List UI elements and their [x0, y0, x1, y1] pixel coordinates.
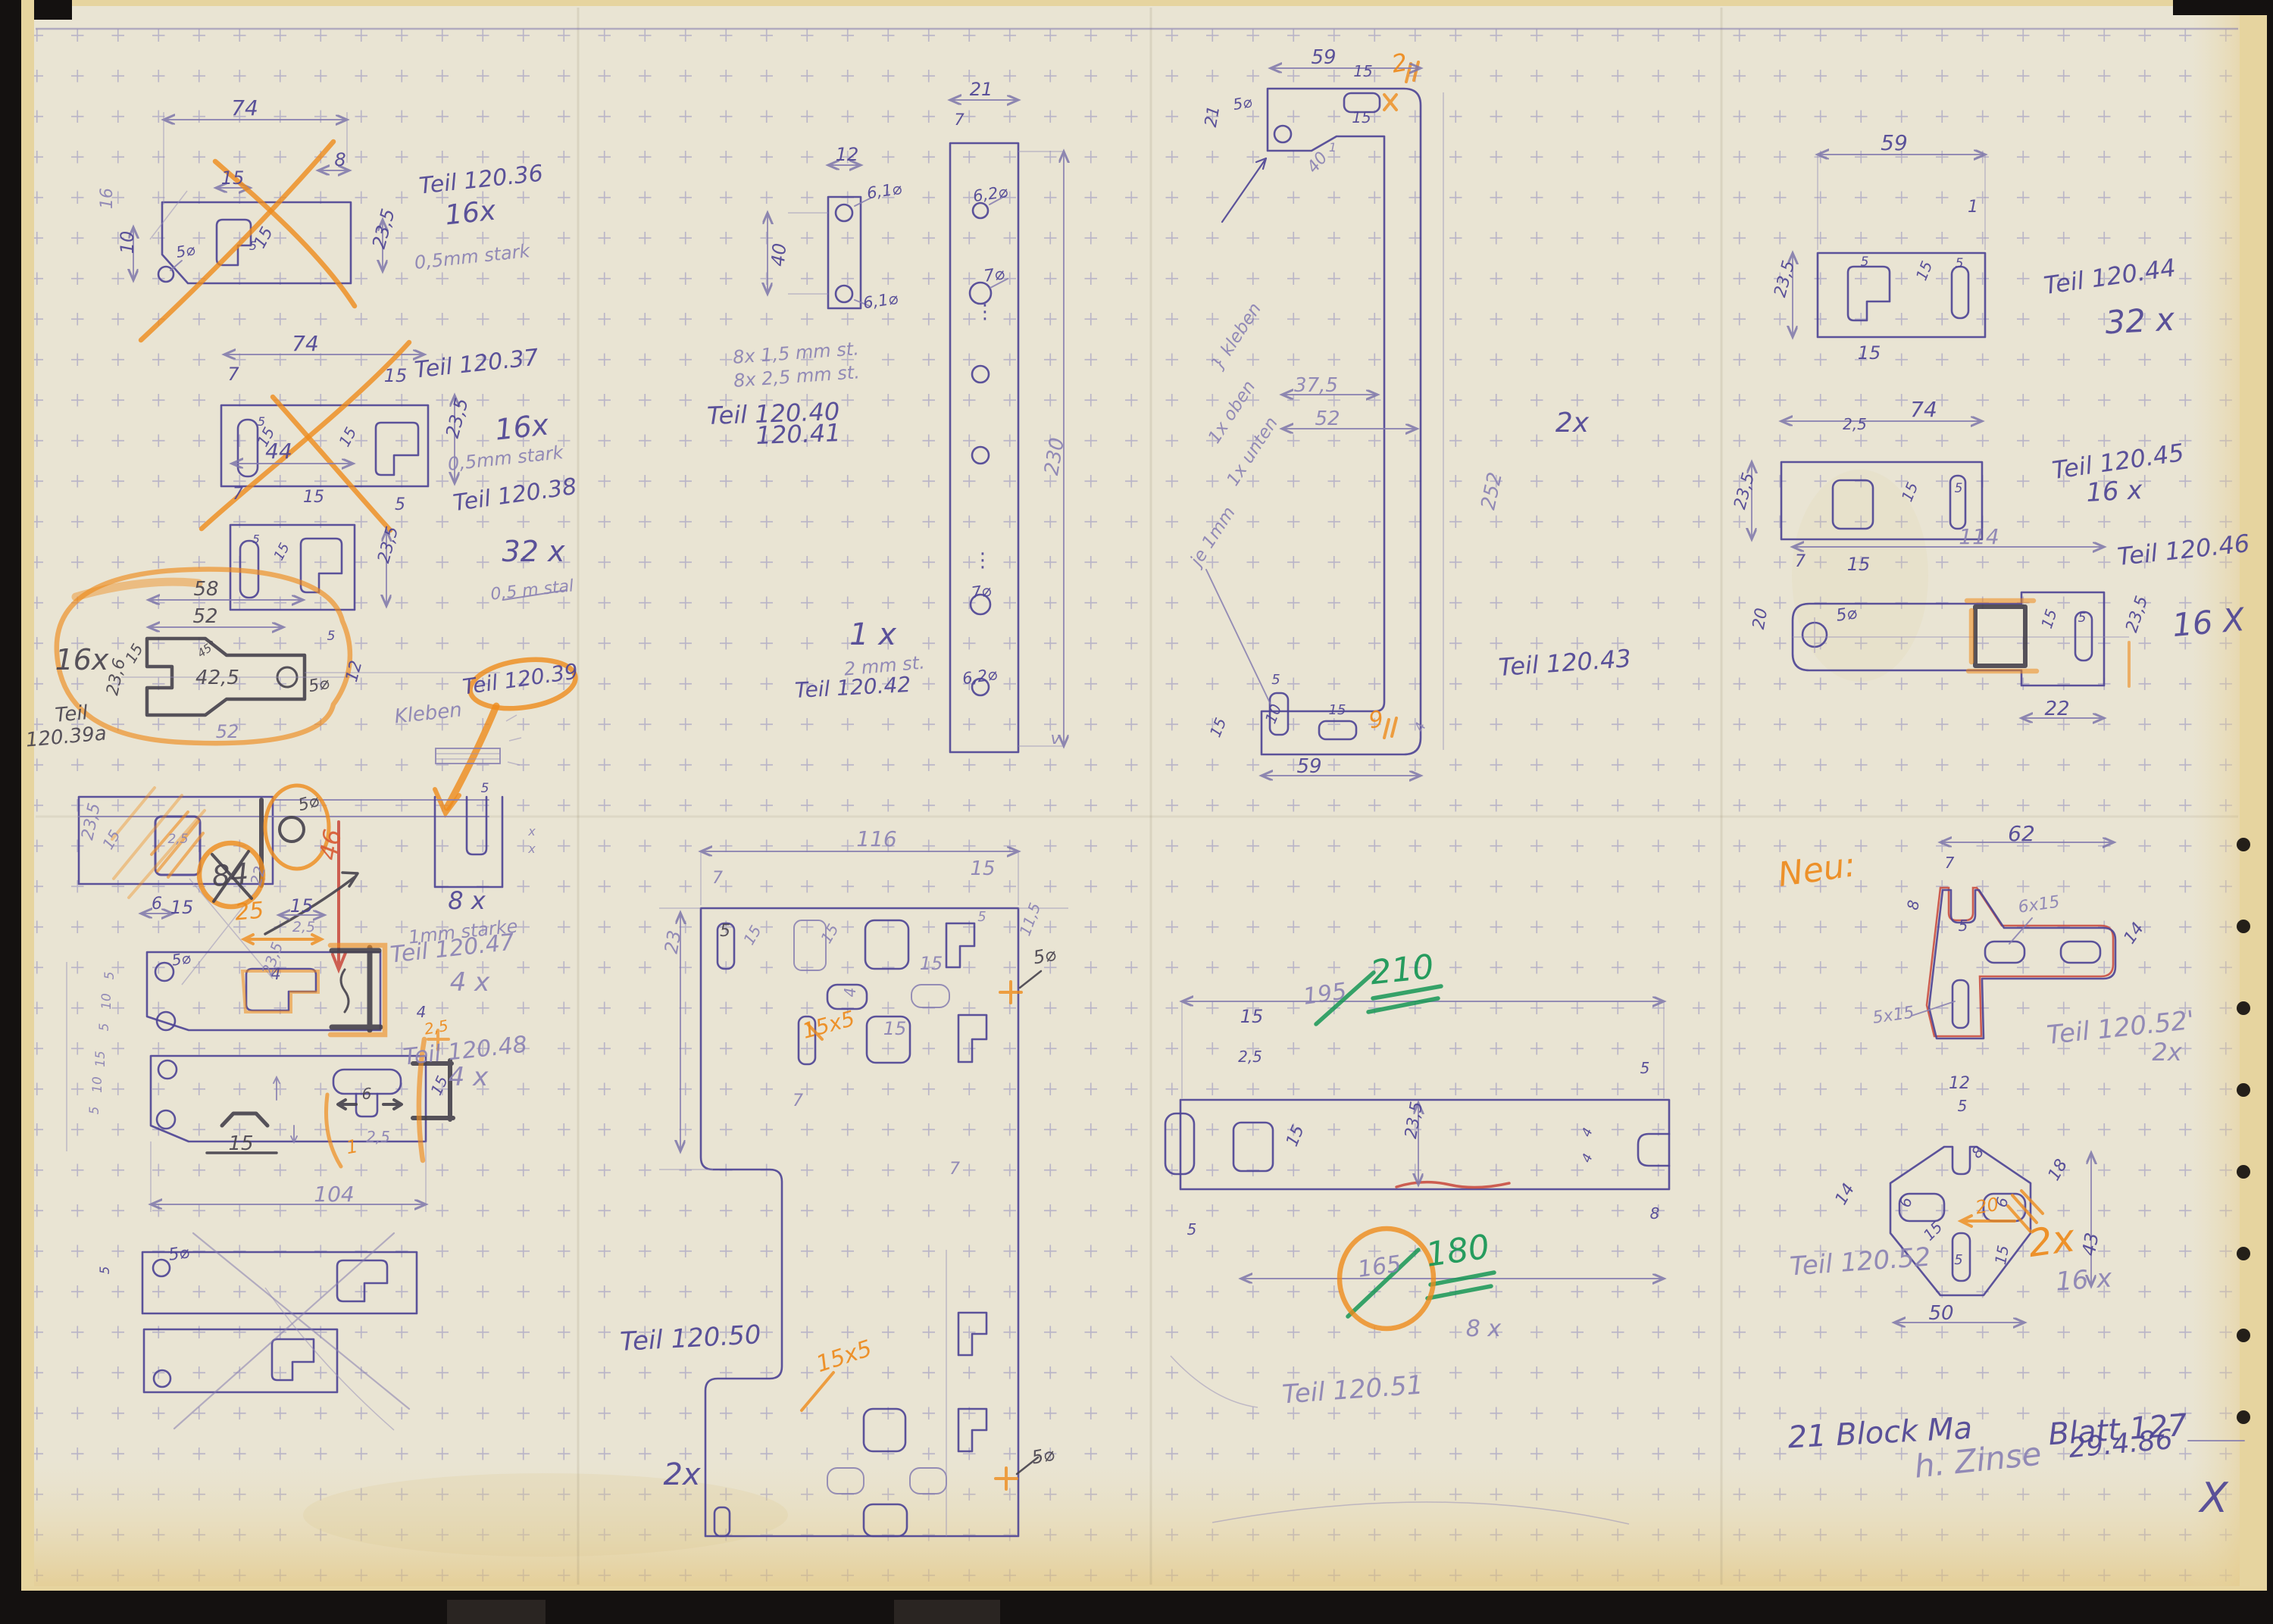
p46-d22: 22 [2044, 698, 2069, 720]
p37-d5b: 5 [395, 495, 405, 514]
asm-d15b: 15 [170, 897, 194, 918]
p43-d5: 5 [1271, 672, 1280, 688]
p50-d4: 4 [841, 988, 859, 998]
p46-qty: 16 X [2171, 601, 2247, 644]
p36-d5: 5 [249, 239, 257, 253]
p50-d7c: 7 [949, 1160, 960, 1179]
p37-d7: 7 [227, 364, 239, 385]
p39a-qty: 16x [55, 643, 109, 676]
p43-d15d: 15 [1329, 702, 1346, 718]
scan-edge-artifact [447, 1600, 546, 1624]
p50-d7b: 7 [793, 1092, 803, 1110]
st2: 10 [99, 993, 114, 1010]
p42-d21: 21 [970, 79, 993, 100]
p44-d1: 1 [1968, 198, 1978, 217]
p50-d5b: 5 [977, 909, 986, 925]
p52-d15b: 15 [1991, 1244, 2012, 1266]
p40-d12: 12 [836, 144, 859, 165]
cr-d5o: 5⌀ [167, 1243, 191, 1265]
p46-d5o: 5⌀ [1835, 604, 1859, 626]
scanned-drawing-sheet: Blatt 127 [0, 0, 2273, 1624]
p46-d114: 114 [1959, 524, 1999, 549]
p43-d375: 37,5 [1294, 374, 1338, 397]
p43-d21: 21 [1202, 105, 1224, 129]
paper-edge-band [2190, 6, 2240, 1586]
p47-d25o: 25 [234, 897, 265, 926]
p50-d116: 116 [856, 826, 896, 851]
p36-d5o: 5⌀ [175, 240, 197, 261]
p36-d10: 10 [117, 231, 138, 255]
p52p-d7: 7 [1945, 854, 1955, 872]
p38-d15: 15 [303, 488, 324, 507]
p52p-d62: 62 [2008, 821, 2035, 846]
st3: 5 [97, 1023, 112, 1032]
scan-edge-artifact [894, 1600, 1000, 1624]
p45-qty: 16 x [2085, 475, 2143, 508]
p45-d15b: 15 [1847, 554, 1871, 575]
p47-d4: 4 [417, 1003, 427, 1021]
p52-d5a: 5 [1958, 1097, 1968, 1115]
p45-d74: 74 [1910, 397, 1937, 422]
p52-qty: 16 x [2055, 1263, 2114, 1297]
p39a-d5: 5 [327, 629, 336, 644]
p44-d15b: 15 [1858, 342, 1881, 364]
f-x: X [2198, 1474, 2229, 1522]
p50-d5o1: 5⌀ [1032, 944, 1058, 969]
st6: 5 [87, 1107, 102, 1115]
p43-qty: 2x [1555, 408, 1590, 439]
p43-d15b: 15 [1352, 108, 1371, 126]
p39a-d425: 42,5 [195, 667, 239, 689]
p36-qty: 16x [443, 195, 498, 232]
p37-qty: 16x [493, 408, 551, 446]
p43-d52: 52 [1315, 408, 1340, 430]
p52p-qty: 2x [2152, 1038, 2182, 1067]
p38-d7: 7 [233, 485, 243, 504]
asm-qty: 8 x [448, 886, 486, 915]
p50-d15a: 15 [970, 857, 995, 880]
p43-d5o: 5⌀ [1232, 92, 1254, 114]
p38-d44: 44 [265, 439, 292, 464]
p42-dots1: ⋮ [975, 301, 995, 323]
p51-d5b: 5 [1187, 1220, 1197, 1238]
p45-d25: 2,5 [1843, 415, 1867, 433]
p39a-l1: Teil [55, 701, 89, 727]
p50-d7: 7 [712, 869, 723, 888]
asm-d25b: 2,5 [292, 919, 315, 935]
p52-d12: 12 [1949, 1074, 1970, 1093]
p45-d5: 5 [1955, 481, 1963, 496]
p39a-d5o: 5⌀ [307, 674, 331, 696]
p50-d5a: 5 [720, 922, 730, 941]
asm-d5: 5 [481, 781, 489, 796]
p51-d15: 15 [1240, 1006, 1264, 1027]
asm-x2: x [527, 842, 536, 856]
p43-d59b: 59 [1296, 755, 1321, 778]
p42-d7: 7 [954, 111, 965, 129]
p42-v: v [1050, 729, 1061, 748]
p50-qty: 2x [663, 1457, 700, 1492]
p39a-d52b: 52 [216, 721, 239, 742]
p48-d25: 2,5 [366, 1128, 390, 1146]
p38-qty: 32 x [502, 535, 565, 568]
p39a-d58: 58 [193, 578, 218, 601]
p47-qty: 4 x [450, 967, 490, 998]
st4: 15 [93, 1051, 108, 1067]
p39a-d52: 52 [192, 605, 217, 628]
scan-background [0, 0, 2273, 1624]
p40-label2: 120.41 [755, 418, 841, 450]
p44-d59: 59 [1881, 130, 1908, 155]
p46-d20: 20 [1749, 607, 1771, 631]
p37-d5: 5 [258, 414, 265, 429]
p52-d50: 50 [1928, 1302, 1953, 1325]
p40-d40: 40 [768, 242, 791, 267]
p48-d15: 15 [228, 1132, 253, 1155]
p52-o2x: 2x [2025, 1216, 2078, 1266]
corner-shadow [2173, 0, 2273, 15]
p43-d1: 1 [1329, 140, 1337, 155]
p43-d59: 59 [1311, 46, 1336, 69]
p50-d5o2: 5⌀ [1030, 1444, 1057, 1469]
p44-d5b: 5 [1956, 256, 1964, 271]
p37-d74: 74 [292, 331, 319, 356]
p52p-d5: 5 [1959, 917, 1968, 935]
p44-qty: 32 x [2104, 301, 2176, 342]
p50-d15e: 15 [883, 1018, 907, 1039]
p48-qty: 4 x [449, 1062, 489, 1092]
p51-g210: 210 [1368, 948, 1436, 992]
corner-shadow [34, 0, 72, 20]
p42-qty: 1 x [849, 617, 896, 652]
p50-d23: 23 [661, 929, 686, 955]
p37-d15: 15 [384, 365, 408, 386]
p51-qty: 8 x [1466, 1316, 1502, 1342]
asm-x1: x [527, 824, 536, 839]
p36-d16: 16 [98, 188, 117, 209]
p47-d6: 6 [152, 895, 162, 913]
drawing-sheet: Blatt 127 [0, 0, 2273, 1624]
p51-d5a: 5 [1640, 1059, 1650, 1077]
p42-d7ob: 7⌀ [970, 581, 992, 601]
p52-d43: 43 [2078, 1231, 2103, 1257]
st1: 5 [102, 972, 117, 980]
p48-d6: 6 [362, 1085, 372, 1103]
p51-d25: 2,5 [1238, 1048, 1262, 1066]
p51-d8: 8 [1650, 1204, 1660, 1223]
st5: 10 [90, 1076, 105, 1093]
p36-d8: 8 [334, 149, 345, 170]
p50-d15d: 15 [920, 953, 943, 974]
p52-d5b: 5 [1954, 1252, 1962, 1268]
p38-d5: 5 [252, 532, 260, 546]
p36-d15: 15 [221, 167, 245, 189]
p52-o20: 20 [1974, 1194, 2000, 1219]
p47-d15: 15 [290, 895, 314, 917]
p42-dots2: ⋮ [973, 549, 993, 572]
p47-84: 84 [211, 857, 250, 893]
asm-d46: 46 [314, 827, 347, 863]
p47-d5o: 5⌀ [170, 948, 192, 969]
p48-d104: 104 [314, 1182, 354, 1207]
cr-d5: 5 [98, 1266, 113, 1275]
p36-d74: 74 [231, 95, 258, 120]
p43-d15a: 15 [1353, 62, 1372, 80]
asm-d25: 2,5 [167, 832, 188, 847]
p44-d5: 5 [1861, 255, 1869, 270]
p46-d7: 7 [1795, 552, 1806, 571]
p46-d5: 5 [2078, 611, 2087, 626]
dot-grid [34, 6, 2240, 1586]
p42-d7o: 7⌀ [983, 264, 1006, 286]
